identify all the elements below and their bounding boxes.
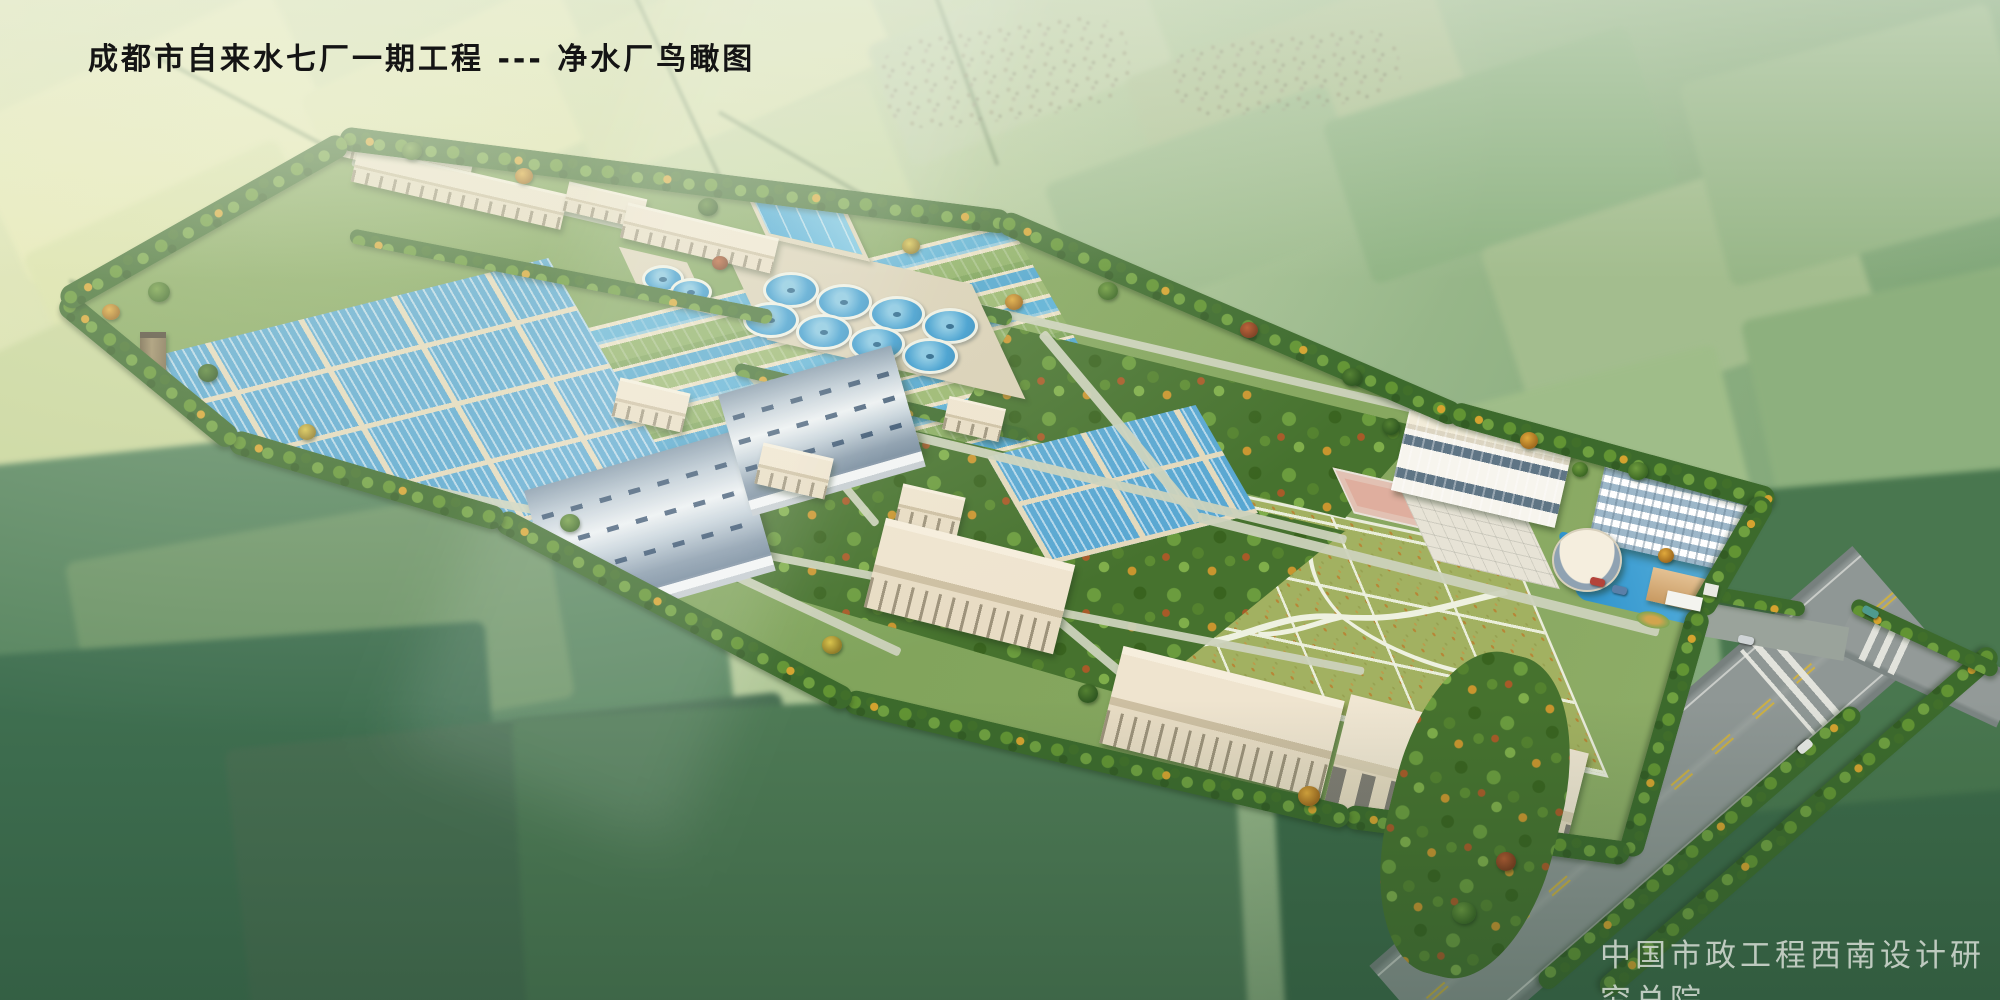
decorative-tree bbox=[1005, 294, 1023, 310]
decorative-tree bbox=[560, 514, 580, 532]
design-institute-credit: 中国市政工程西南设计研究总院 bbox=[1600, 930, 2000, 1000]
decorative-tree bbox=[902, 238, 920, 254]
decorative-tree bbox=[698, 198, 718, 216]
decorative-tree bbox=[298, 424, 316, 440]
gate-kiosk bbox=[1703, 583, 1719, 598]
decorative-tree bbox=[102, 304, 120, 320]
decorative-tree bbox=[822, 636, 842, 654]
decorative-tree bbox=[1240, 322, 1258, 338]
decorative-tree bbox=[712, 256, 728, 270]
decorative-tree bbox=[402, 142, 422, 160]
decorative-tree bbox=[1298, 786, 1320, 806]
page-title: 成都市自来水七厂一期工程 --- 净水厂鸟瞰图 bbox=[88, 34, 755, 78]
decorative-tree bbox=[1098, 282, 1118, 300]
decorative-tree bbox=[1452, 902, 1476, 924]
decorative-tree bbox=[1342, 368, 1362, 386]
decorative-tree bbox=[1572, 462, 1588, 477]
decorative-tree bbox=[148, 282, 170, 302]
clarifier-tank bbox=[796, 314, 852, 350]
decorative-tree bbox=[1382, 418, 1400, 435]
clarifier-tank bbox=[902, 338, 958, 374]
round-pavilion bbox=[1552, 528, 1622, 592]
decorative-tree bbox=[515, 168, 533, 184]
decorative-tree bbox=[1520, 432, 1538, 449]
decorative-tree bbox=[1078, 684, 1098, 703]
decorative-tree bbox=[1628, 462, 1648, 480]
decorative-tree bbox=[1658, 548, 1674, 563]
decorative-tree bbox=[1496, 852, 1516, 871]
decorative-tree bbox=[198, 364, 218, 382]
aerial-rendering-scene: 成都市自来水七厂一期工程 --- 净水厂鸟瞰图 中国市政工程西南设计研究总院 bbox=[0, 0, 2000, 1000]
